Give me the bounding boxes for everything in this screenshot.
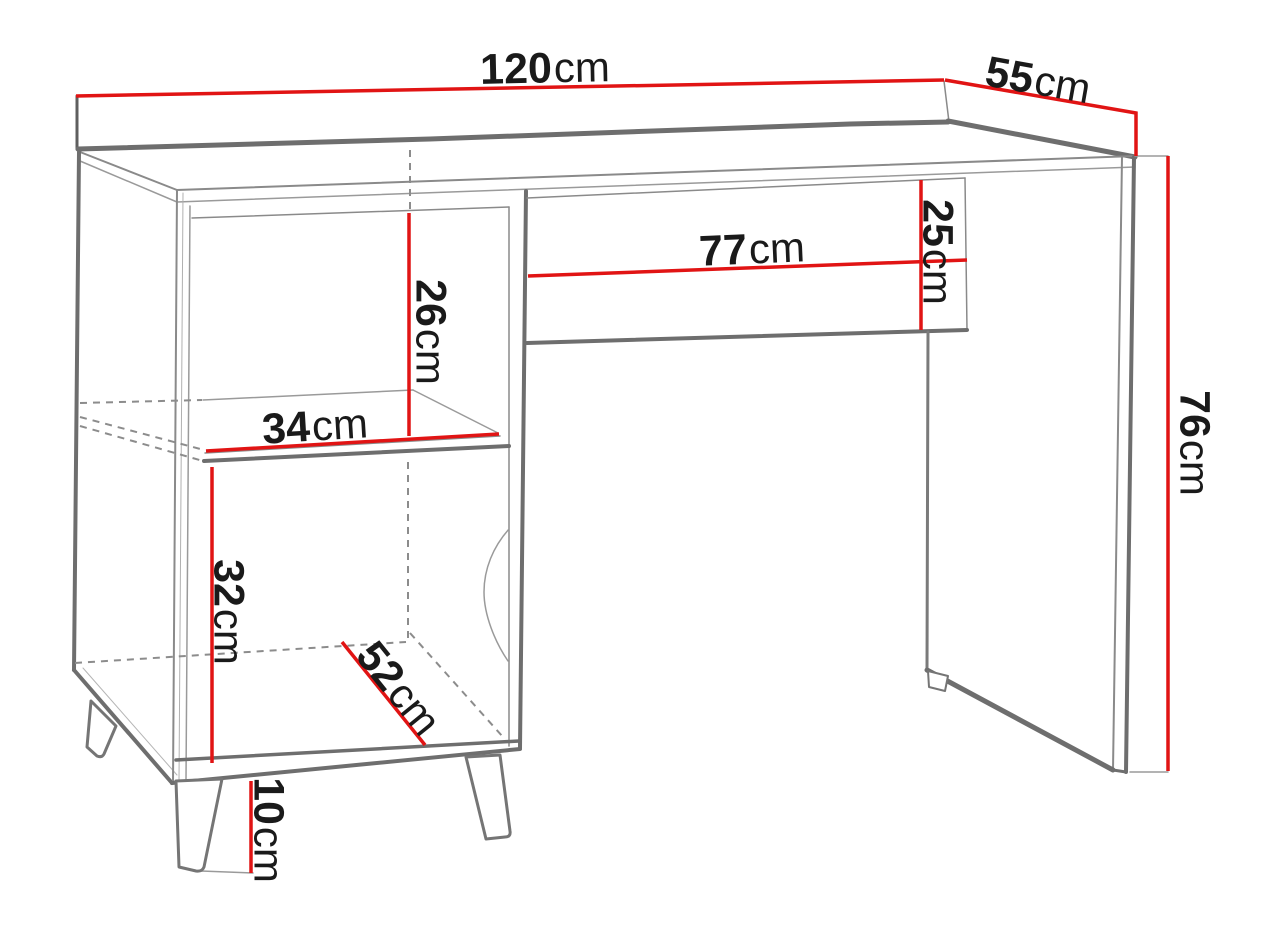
- shelf-opening-height-label: 26cm: [409, 279, 452, 385]
- drawer-width-label: 77cm: [698, 226, 806, 274]
- door-handle-curve: [484, 529, 509, 661]
- desk-dimension-diagram: 120cm 55cm 77cm 25cm 26cm 34cm 32cm 52cm…: [0, 0, 1264, 948]
- desk-depth-value: 55: [982, 48, 1037, 104]
- drawer-height-value: 25: [914, 199, 962, 247]
- desk-width-unit: cm: [553, 43, 610, 91]
- shelf-opening-height-unit: cm: [408, 329, 455, 385]
- right-panel-back-edge: [927, 332, 928, 670]
- desk-depth-unit: cm: [1031, 56, 1094, 112]
- desk-height-label: 76cm: [1173, 390, 1216, 496]
- leg-height-label: 10cm: [247, 777, 290, 883]
- desk-diagram-drawing: [0, 0, 1264, 948]
- cabinet-opening-height-value: 32: [205, 559, 253, 607]
- front-right-leg: [466, 755, 510, 839]
- cabinet-opening-height-label: 32cm: [207, 559, 250, 665]
- drawer-width-value: 77: [698, 226, 748, 276]
- desk-height-value: 76: [1171, 390, 1219, 438]
- shelf-opening-top-edge: [192, 207, 509, 218]
- desk-width-value: 120: [480, 44, 553, 93]
- leg-height-unit: cm: [246, 827, 293, 883]
- drawer-height-unit: cm: [915, 249, 962, 305]
- shelf-width-value: 34: [261, 403, 312, 454]
- cabinet-bottom-right-corner: [519, 741, 520, 749]
- desk-height-unit: cm: [1172, 440, 1219, 496]
- desk-legs: [87, 671, 948, 871]
- pedestal-inner-left-edge: [186, 206, 190, 780]
- right-panel-bottom-edge: [927, 670, 1113, 770]
- drawer-width-unit: cm: [748, 223, 806, 272]
- cabinet-opening-height-unit: cm: [206, 609, 253, 665]
- back-right-leg-foot: [928, 671, 948, 691]
- desk-width-label: 120cm: [480, 46, 611, 92]
- shelf-opening-height-value: 26: [407, 279, 455, 327]
- left-panel-front-inner-edge: [179, 193, 183, 781]
- shelf-width-label: 34cm: [261, 402, 369, 451]
- front-left-leg: [176, 779, 222, 871]
- pedestal-right-wall-outer-edge: [520, 191, 526, 748]
- leg-height-value: 10: [245, 777, 293, 825]
- shelf-width-unit: cm: [310, 399, 369, 449]
- drawer-height-label: 25cm: [916, 199, 959, 305]
